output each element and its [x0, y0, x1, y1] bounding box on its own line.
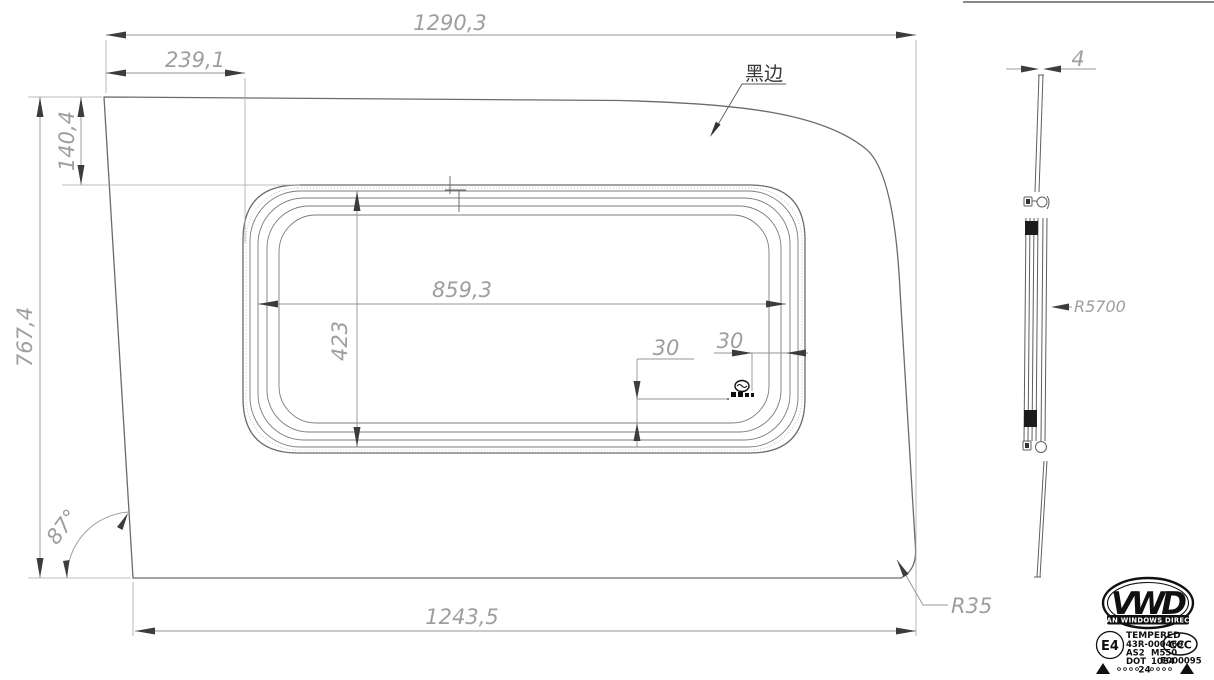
vwd-logo-name: VAN WINDOWS DIRECT [1101, 617, 1194, 625]
side-upper-blade [1035, 75, 1044, 192]
dim-left-to-opening: 239,1 [106, 48, 245, 243]
dim-opening-width: 859,3 [258, 278, 786, 308]
ccc-approval-no: E000095 [1160, 657, 1201, 667]
opening-ring-3 [267, 206, 781, 432]
dim-glass-thickness-text: 4 [1071, 47, 1084, 71]
ccc-mark-text: CCC [1169, 639, 1192, 652]
dim-corner-radius-text: R35 [951, 594, 992, 618]
dim-overall-width-text: 1290,3 [413, 11, 486, 35]
dim-bottom-width-text: 1243,5 [425, 605, 498, 629]
dim-left-to-opening-text: 239,1 [165, 48, 225, 72]
drawing-svg: 1290,3 239,1 140,4 767,4 [0, 0, 1214, 680]
dim-stamp-offset-horizontal: 30 [714, 329, 808, 391]
black-edge-label: 黑边 [745, 63, 783, 85]
vwd-logo: VWD VAN WINDOWS DIRECT [1101, 578, 1194, 628]
side-bottom-clamp [1023, 441, 1047, 453]
side-main-band [1024, 218, 1047, 441]
dim-opening-height: 423 [328, 191, 361, 447]
center-alignment-mark [445, 176, 466, 212]
dim-top-band-height-text: 140,4 [55, 111, 79, 171]
black-edge-callout: 黑边 [710, 63, 786, 137]
cert-triangle-left [1096, 663, 1110, 674]
dim-glass-thickness: 4 [1006, 47, 1096, 73]
glass-panel-frit-band [104, 97, 916, 578]
side-rubber-block-top [1025, 221, 1038, 235]
dim-opening-height-text: 423 [328, 321, 352, 361]
dim-bottom-width: 1243,5 [133, 582, 916, 636]
side-profile-view: 4 [1006, 47, 1126, 577]
side-lower-blade [1034, 461, 1047, 577]
dimension-annotations: 1290,3 239,1 140,4 767,4 [13, 11, 992, 636]
certification-block: VWD VAN WINDOWS DIRECT E4 TEMPERED 43R-0… [1096, 578, 1202, 676]
dim-stamp-offset-vertical-text: 30 [653, 336, 680, 360]
opening-ring-1 [250, 191, 798, 447]
frit-dotted-edge [246, 188, 802, 450]
black-edge-leader-arrow [710, 122, 721, 137]
dim-stamp-offset-horizontal-text: 30 [717, 329, 744, 353]
opening-ring-2 [258, 198, 790, 440]
dim-opening-width-text: 859,3 [432, 278, 492, 302]
dim-overall-width: 1290,3 [106, 11, 916, 636]
glass-stamp [727, 381, 754, 401]
side-rubber-block-bottom [1024, 410, 1037, 427]
dim-overall-height-text: 767,4 [13, 307, 37, 367]
cert-year-code: 24 [1138, 666, 1151, 676]
opening-ring-4 [279, 215, 769, 423]
main-view [104, 97, 916, 578]
side-top-clamp [1024, 196, 1049, 209]
e4-mark-text: E4 [1101, 639, 1119, 654]
dim-bend-radius-text: R5700 [1074, 297, 1126, 316]
technical-drawing-canvas: 1290,3 239,1 140,4 767,4 [0, 0, 1214, 680]
dim-bend-radius: R5700 [1051, 297, 1126, 316]
dim-corner-angle: 87° [42, 505, 129, 578]
dim-top-band-height: 140,4 [28, 97, 300, 185]
